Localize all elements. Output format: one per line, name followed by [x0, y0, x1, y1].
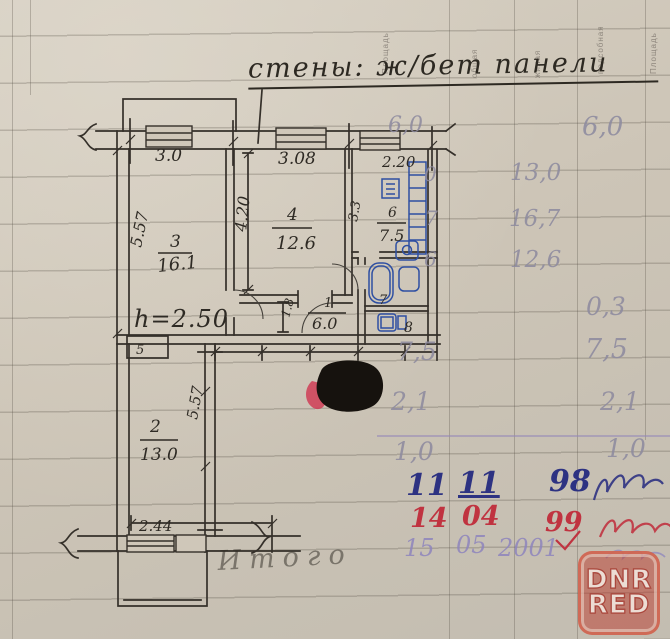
- signature-red: [600, 520, 670, 537]
- date-purple-month: 05: [456, 531, 487, 559]
- cell-row2-partial: 0: [424, 162, 437, 186]
- plan-labels: 3.0 3.08 2.20 5.57 3 16.1 4.20 4 12.6 3.…: [126, 146, 416, 577]
- bath-number: 7: [379, 293, 388, 308]
- kitchen-depth: 3.3: [346, 200, 364, 223]
- floor-plan-svg: 3.0 3.08 2.20 5.57 3 16.1 4.20 4 12.6 3.…: [0, 0, 670, 639]
- date-purple-day: 15: [404, 534, 435, 562]
- scanned-floorplan-sheet: Площадь общая жилая подсобная Площадь ст…: [0, 0, 670, 639]
- cell-row7-right: 2,1: [600, 387, 640, 416]
- cell-row8-left: 1,0: [394, 437, 434, 466]
- cell-total-right: 6,0: [582, 112, 623, 142]
- cell-row8-right: 1,0: [606, 434, 646, 463]
- dnr-red-watermark: DNR RED: [578, 551, 660, 635]
- room3-depth: 5.57: [126, 209, 152, 249]
- date-red-month: 04: [462, 501, 500, 532]
- cell-row7-left: 2,1: [391, 387, 431, 416]
- date-blue-month: 11: [458, 466, 500, 501]
- room3-number: 3: [170, 232, 181, 252]
- dim-top-room3: 3.0: [155, 146, 182, 166]
- cell-total-left: 6,0: [388, 113, 423, 138]
- cell-row4-partial: 6: [424, 247, 437, 271]
- cell-row2-mid: 13,0: [510, 160, 561, 186]
- signature-blue: [594, 475, 663, 500]
- watermark-line2: RED: [588, 593, 650, 618]
- hall-width: 1.8: [278, 296, 297, 318]
- hall-number: 1: [324, 296, 332, 311]
- room2-area: 13.0: [140, 445, 178, 465]
- room4-number: 4: [286, 205, 298, 225]
- date-purple-year: 2001: [498, 534, 559, 562]
- ceiling-height-note: h=2.50: [134, 305, 229, 333]
- cell-row3-mid: 16,7: [509, 206, 560, 232]
- hall-area: 6.0: [312, 314, 337, 333]
- cell-row6-right: 7,5: [585, 334, 628, 365]
- cell-row5-right: 0,3: [586, 292, 626, 321]
- black-blob: [317, 360, 383, 411]
- redaction-blob: [306, 360, 383, 411]
- cell-row6-left: 7,5: [397, 337, 437, 366]
- cell-row3-partial: 7: [425, 206, 438, 230]
- balcony-width: 2.44: [138, 517, 172, 535]
- room4-area: 12.6: [276, 233, 316, 254]
- wc-number: 8: [404, 320, 413, 336]
- room2-depth: 5.57: [183, 384, 207, 420]
- date-blue-year: 98: [549, 464, 591, 499]
- cell-row4-mid: 12,6: [510, 247, 561, 273]
- dim-top-kitchen: 2.20: [381, 153, 416, 171]
- date-red-day: 14: [410, 503, 448, 534]
- closet-number: 5: [136, 343, 144, 358]
- dim-top-room4: 3.08: [278, 149, 316, 169]
- room2-number: 2: [149, 417, 161, 437]
- kitchen-number: 6: [388, 205, 397, 221]
- kitchen-area: 7.5: [379, 226, 404, 245]
- room3-area: 16.1: [156, 252, 198, 277]
- date-blue-day: 11: [406, 468, 448, 503]
- door-arcs: [234, 264, 358, 333]
- room4-depth: 4.20: [231, 195, 254, 233]
- total-label-faint: Итого: [216, 539, 354, 577]
